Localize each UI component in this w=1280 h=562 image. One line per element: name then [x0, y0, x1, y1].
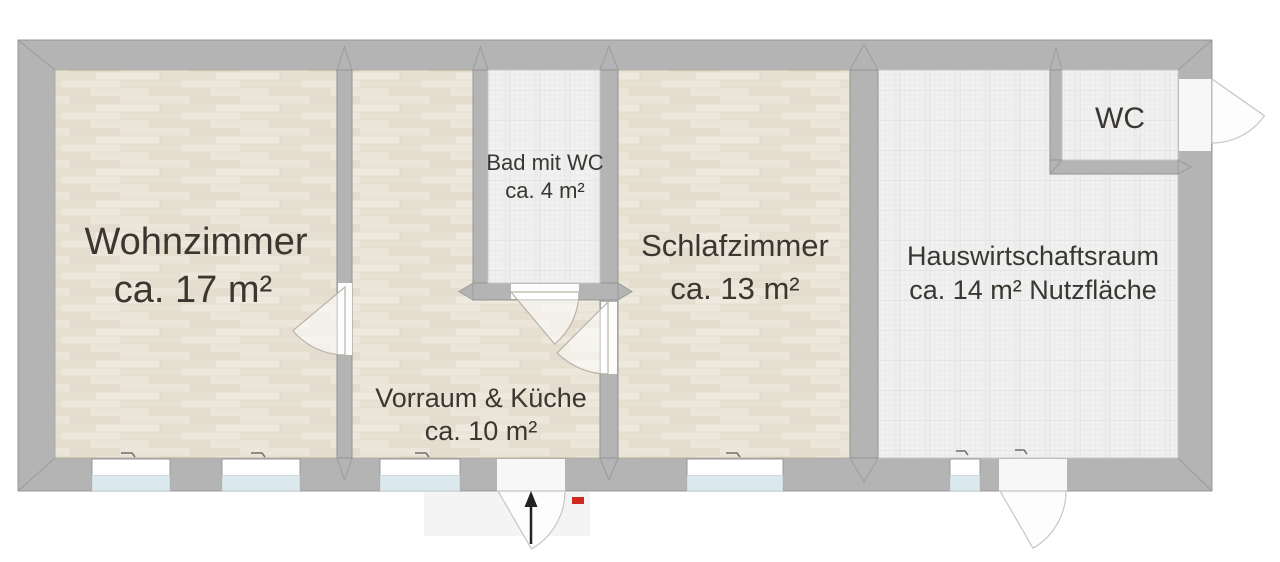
- wall-wc-left: [1050, 70, 1062, 174]
- floor-plan-svg: Wohnzimmer ca. 17 m² Vorraum & Küche ca.…: [0, 0, 1280, 562]
- window-glass: [222, 476, 300, 492]
- entrance-marker-icon: [572, 497, 584, 504]
- wall-wohnzimmer-vorraum: [337, 70, 352, 458]
- label-hwr-name: Hauswirtschaftsraum: [907, 241, 1159, 271]
- entrance-door-opening: [497, 459, 565, 491]
- door-hwr-opening: [999, 459, 1067, 491]
- window-glass: [687, 476, 783, 492]
- label-hwr-area: ca. 14 m² Nutzfläche: [909, 275, 1157, 305]
- wall-wc-bottom: [1050, 160, 1178, 174]
- floor-plan-page: Wohnzimmer ca. 17 m² Vorraum & Küche ca.…: [0, 0, 1280, 562]
- label-vorraum-area: ca. 10 m²: [425, 416, 538, 446]
- wall-schlafzimmer-hwr: [850, 70, 878, 458]
- wall-vorraum-schlafzimmer: [600, 70, 618, 458]
- door-wc-exterior-swing-icon: [1212, 79, 1264, 143]
- label-vorraum-name: Vorraum & Küche: [375, 383, 587, 413]
- label-bad-name: Bad mit WC: [486, 150, 603, 175]
- window-glass: [380, 476, 460, 492]
- floor-schlafzimmer: [618, 70, 850, 458]
- label-schlafzimmer-name: Schlafzimmer: [641, 228, 829, 263]
- label-schlafzimmer-area: ca. 13 m²: [670, 271, 799, 306]
- wall-bad-left: [473, 70, 488, 300]
- label-wohnzimmer-name: Wohnzimmer: [84, 221, 307, 263]
- label-bad-area: ca. 4 m²: [505, 178, 584, 203]
- door-hwr-swing-icon: [1000, 491, 1066, 548]
- door-wc-exterior-opening: [1179, 79, 1211, 151]
- label-wc-name: WC: [1095, 102, 1145, 135]
- window-glass: [92, 476, 170, 492]
- window-glass: [950, 476, 980, 492]
- floor-wohnzimmer: [55, 70, 337, 458]
- label-wohnzimmer-area: ca. 17 m²: [114, 269, 272, 311]
- floor-bad: [488, 70, 600, 283]
